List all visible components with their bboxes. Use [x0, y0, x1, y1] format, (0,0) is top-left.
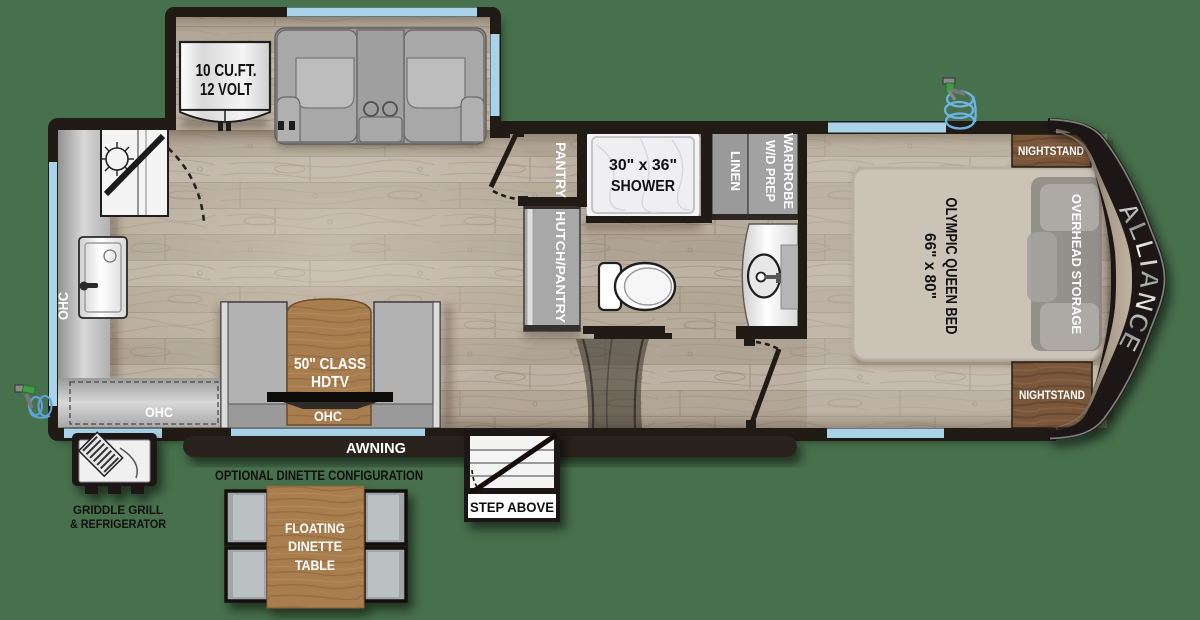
- svg-text:DINETTE: DINETTE: [288, 539, 342, 554]
- svg-text:LINEN: LINEN: [728, 151, 742, 191]
- svg-text:TABLE: TABLE: [295, 558, 335, 573]
- svg-text:HUTCH/PANTRY: HUTCH/PANTRY: [553, 211, 568, 323]
- svg-text:W/D PREP: W/D PREP: [763, 140, 777, 202]
- svg-text:PANTRY: PANTRY: [553, 142, 569, 199]
- svg-text:SHOWER: SHOWER: [611, 178, 675, 195]
- svg-text:12 VOLT: 12 VOLT: [200, 79, 252, 99]
- svg-text:OLYMPIC QUEEN BED: OLYMPIC QUEEN BED: [942, 198, 959, 335]
- svg-text:& REFRIGERATOR: & REFRIGERATOR: [70, 517, 166, 531]
- svg-text:STEP ABOVE: STEP ABOVE: [470, 500, 554, 515]
- svg-text:OVERHEAD STORAGE: OVERHEAD STORAGE: [1069, 194, 1084, 334]
- svg-text:NIGHTSTAND: NIGHTSTAND: [1018, 146, 1084, 158]
- svg-text:50" CLASS: 50" CLASS: [294, 356, 366, 373]
- svg-text:OHC: OHC: [145, 405, 173, 420]
- svg-text:30" x 36": 30" x 36": [609, 157, 677, 174]
- svg-text:OHC: OHC: [314, 409, 342, 424]
- svg-text:10 CU.FT.: 10 CU.FT.: [196, 60, 257, 80]
- svg-text:GRIDDLE GRILL: GRIDDLE GRILL: [73, 503, 163, 517]
- svg-text:NIGHTSTAND: NIGHTSTAND: [1019, 390, 1085, 402]
- svg-text:HDTV: HDTV: [311, 374, 349, 391]
- svg-text:AWNING: AWNING: [346, 440, 406, 457]
- svg-text:WARDROBE: WARDROBE: [781, 133, 795, 209]
- svg-text:OHC: OHC: [56, 292, 71, 320]
- svg-text:66" x 80": 66" x 80": [921, 233, 938, 299]
- svg-text:OPTIONAL DINETTE CONFIGURATION: OPTIONAL DINETTE CONFIGURATION: [215, 467, 423, 483]
- svg-text:FLOATING: FLOATING: [285, 521, 345, 536]
